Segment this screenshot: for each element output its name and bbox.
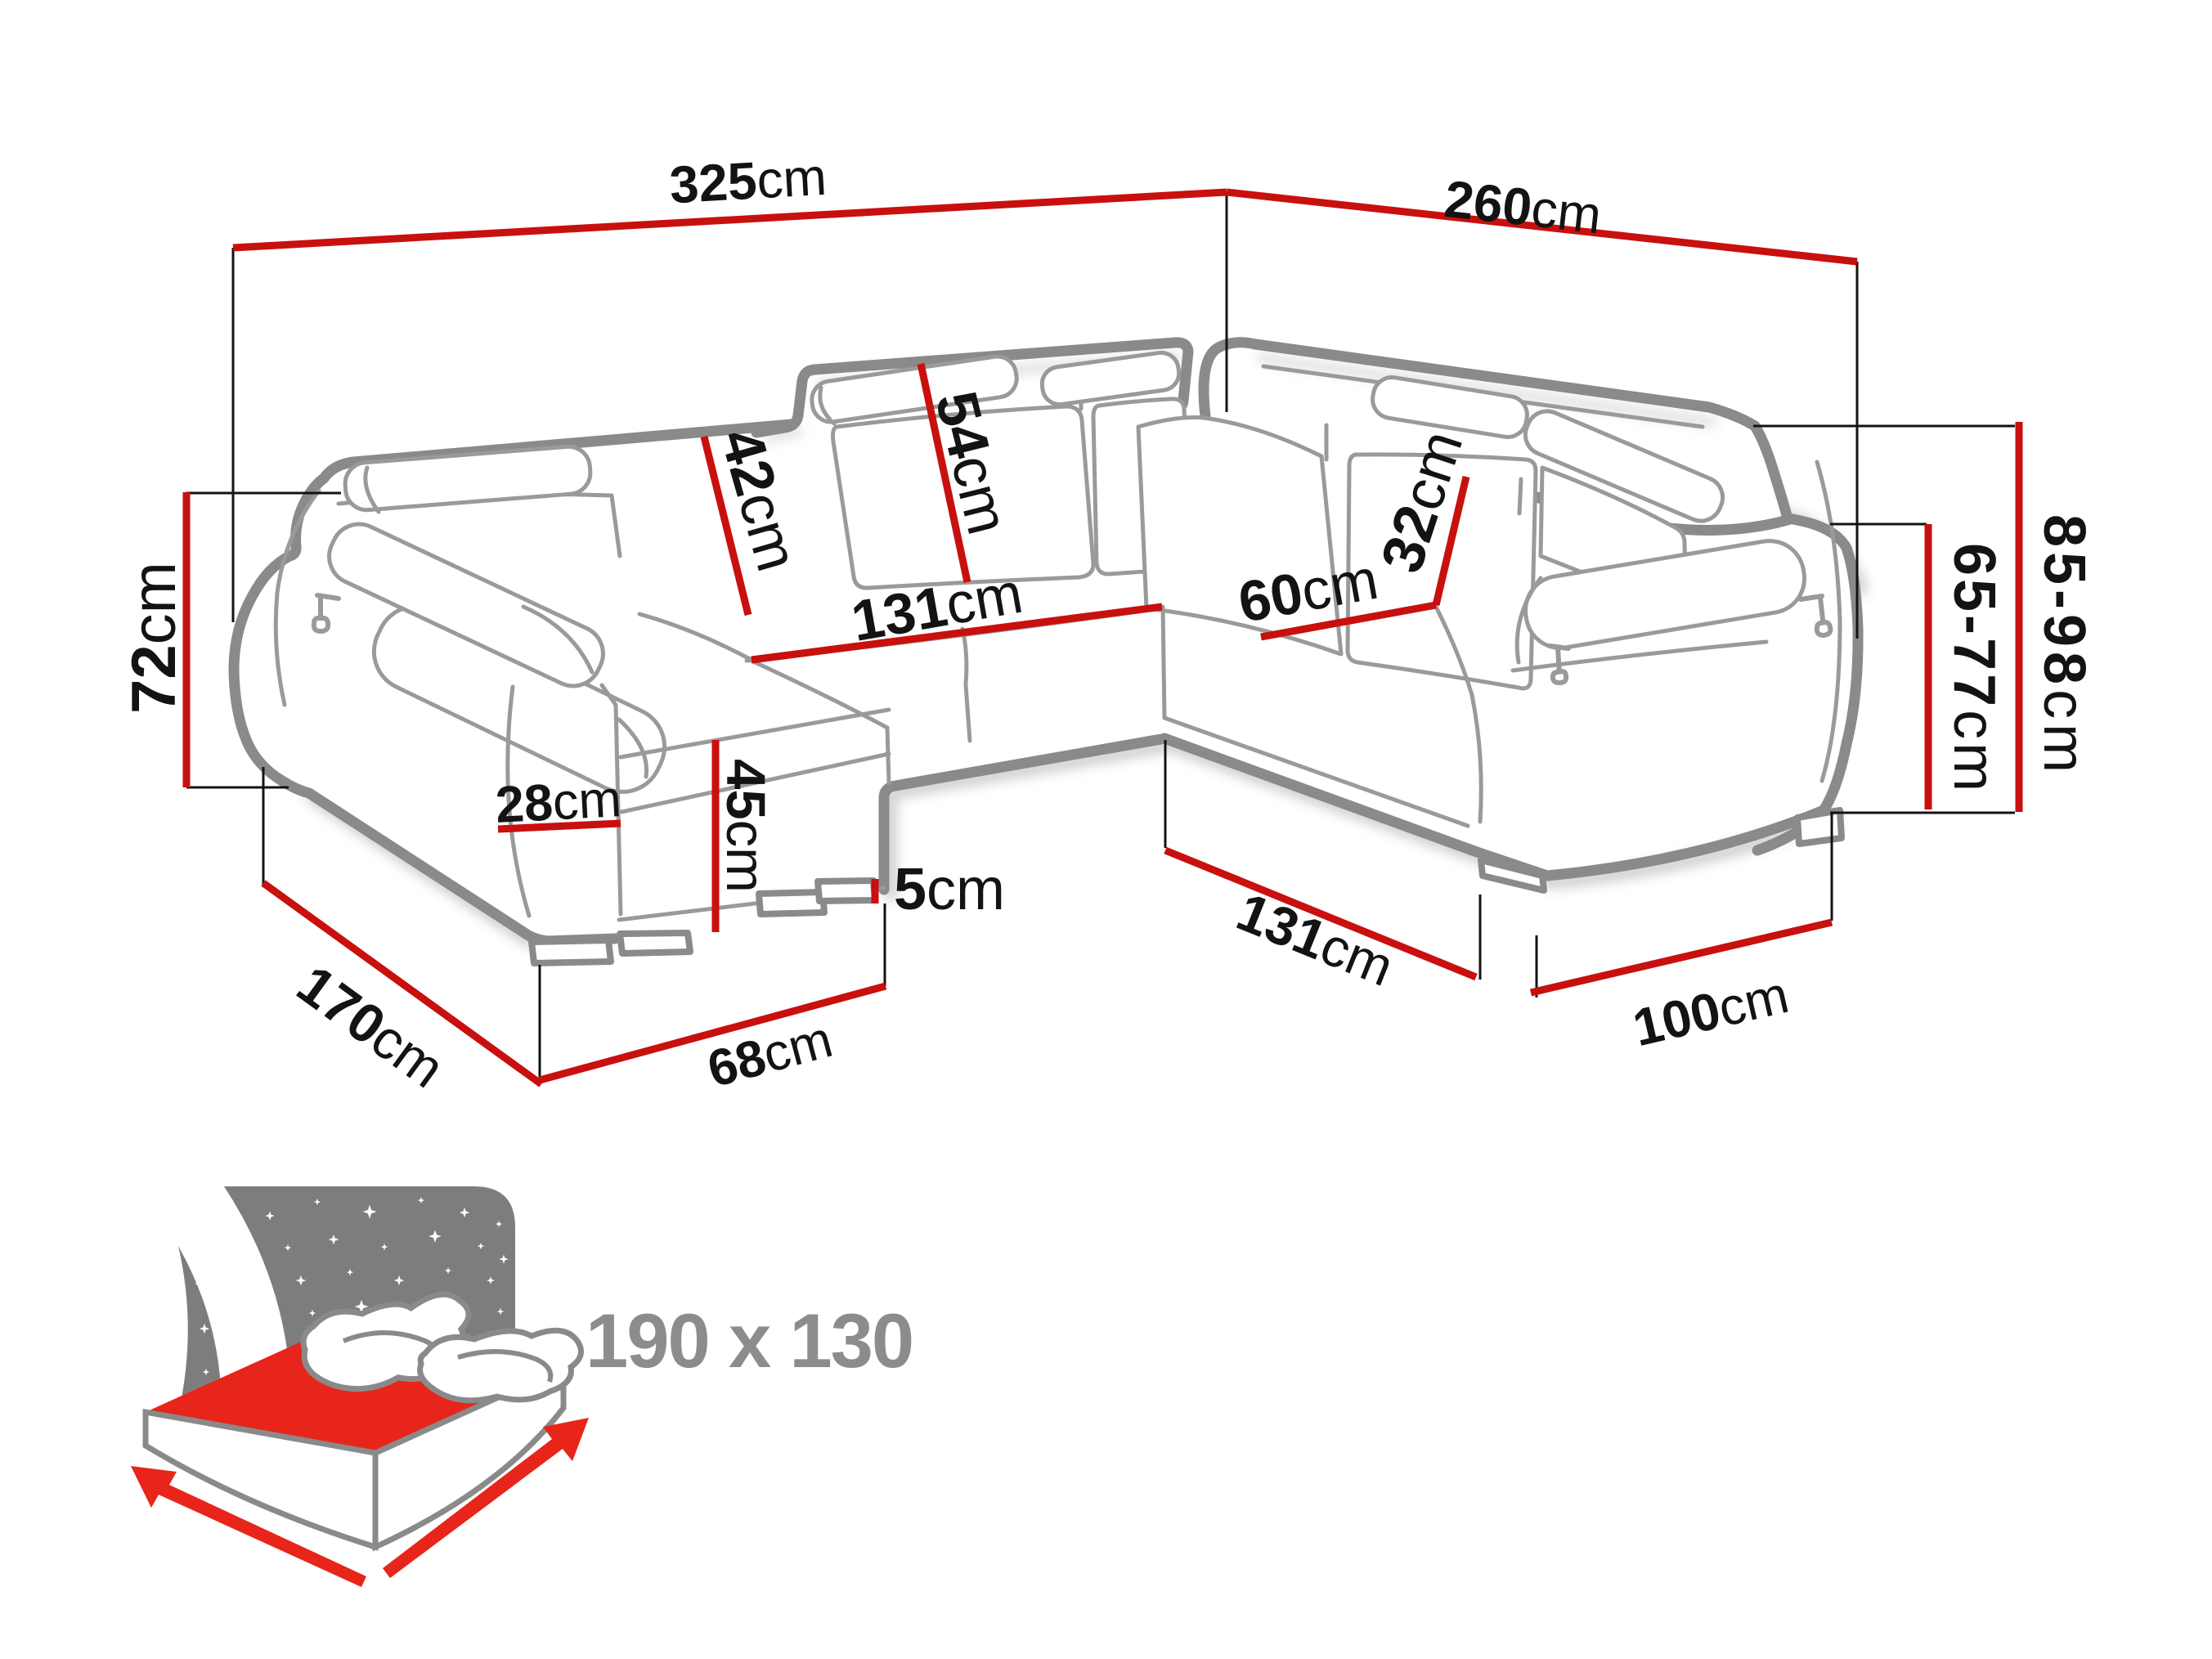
svg-text:72cm: 72cm	[119, 562, 189, 714]
svg-text:190 x 130: 190 x 130	[586, 1298, 913, 1383]
svg-text:45cm: 45cm	[715, 759, 776, 893]
svg-text:5cm: 5cm	[894, 857, 1005, 922]
svg-text:85-98cm: 85-98cm	[2031, 514, 2097, 778]
svg-text:65-77cm: 65-77cm	[1941, 543, 2007, 795]
svg-text:325cm: 325cm	[668, 147, 828, 215]
svg-text:28cm: 28cm	[494, 770, 623, 834]
